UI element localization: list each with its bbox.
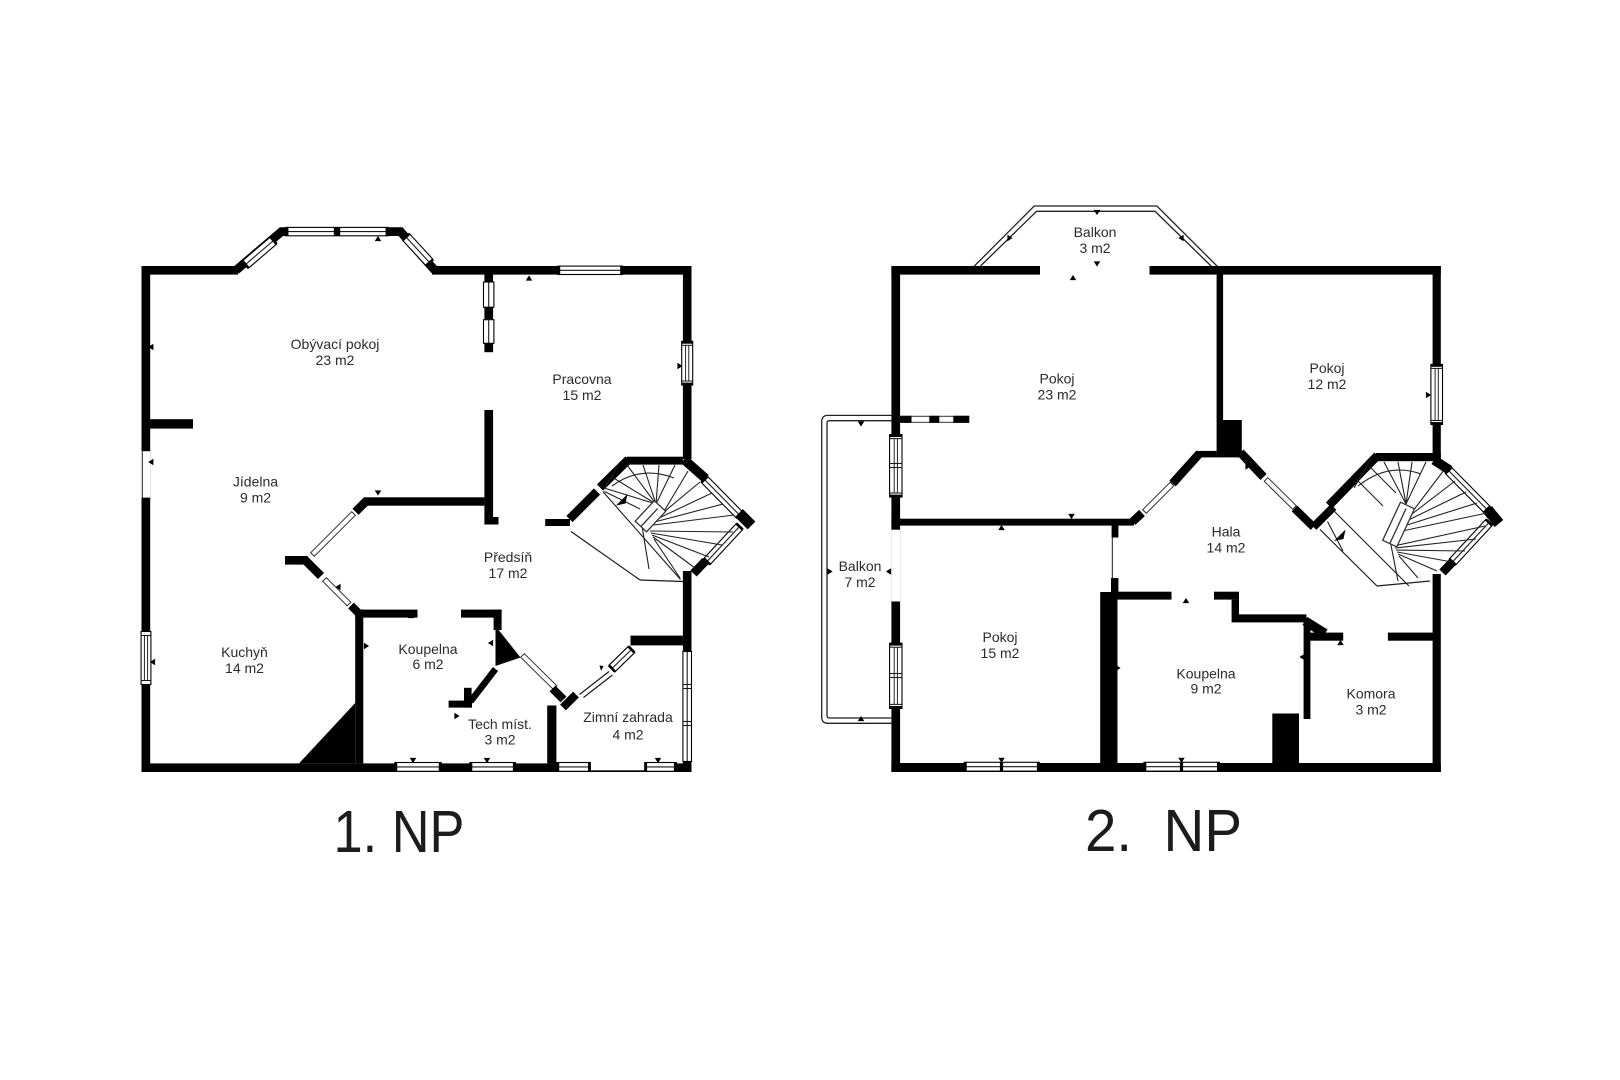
svg-text:14 m2: 14 m2 [225, 660, 264, 676]
svg-text:3 m2: 3 m2 [484, 732, 515, 748]
svg-text:Komora: Komora [1346, 686, 1395, 702]
svg-text:9 m2: 9 m2 [240, 490, 271, 506]
svg-text:1. NP: 1. NP [334, 799, 465, 865]
svg-text:Koupelna: Koupelna [1176, 666, 1235, 682]
svg-text:12 m2: 12 m2 [1308, 376, 1347, 392]
svg-text:17 m2: 17 m2 [489, 565, 528, 581]
svg-text:15 m2: 15 m2 [563, 387, 602, 403]
svg-text:7 m2: 7 m2 [844, 574, 875, 590]
svg-text:4 m2: 4 m2 [612, 727, 643, 743]
svg-text:3 m2: 3 m2 [1079, 240, 1110, 256]
svg-text:Pokoj: Pokoj [982, 629, 1017, 645]
svg-text:Koupelna: Koupelna [398, 641, 457, 657]
svg-text:3 m2: 3 m2 [1355, 702, 1386, 718]
svg-text:Kuchyň: Kuchyň [221, 644, 268, 660]
svg-text:Balkon: Balkon [839, 558, 882, 574]
svg-text:14 m2: 14 m2 [1207, 540, 1246, 556]
svg-text:23 m2: 23 m2 [1038, 387, 1077, 403]
svg-text:Jídelna: Jídelna [233, 474, 278, 490]
svg-text:2. NP: 2. NP [1085, 798, 1242, 864]
svg-text:Pracovna: Pracovna [552, 371, 611, 387]
svg-text:6 m2: 6 m2 [412, 656, 443, 672]
svg-text:23 m2: 23 m2 [316, 352, 355, 368]
svg-text:Obývací pokoj: Obývací pokoj [291, 336, 380, 352]
svg-text:Pokoj: Pokoj [1039, 371, 1074, 387]
svg-text:Předsíň: Předsíň [484, 549, 532, 565]
svg-text:Balkon: Balkon [1074, 224, 1117, 240]
svg-text:Zimní zahrada: Zimní zahrada [583, 709, 673, 725]
svg-text:9 m2: 9 m2 [1190, 681, 1221, 697]
svg-text:Pokoj: Pokoj [1309, 360, 1344, 376]
svg-text:Hala: Hala [1212, 524, 1241, 540]
svg-text:15 m2: 15 m2 [981, 645, 1020, 661]
svg-text:Tech míst.: Tech míst. [468, 716, 532, 732]
